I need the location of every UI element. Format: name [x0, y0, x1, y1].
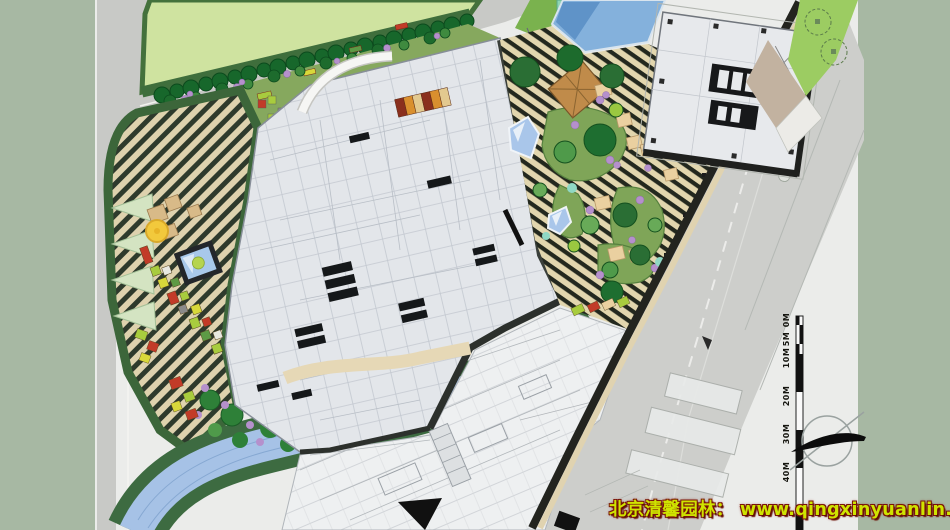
scale-label-40m: 40M [782, 460, 792, 484]
site-plan-drawing [0, 0, 950, 530]
watermark: 北京清馨园林： www.qingxinyuanlin.com [609, 496, 950, 521]
masterplan-canvas: 0M 5M 10M 20M 30M 40M 北京清馨园林： www.qingxi… [0, 0, 950, 530]
scale-label-30m: 30M [782, 422, 792, 446]
scale-label-20m: 20M [782, 384, 792, 408]
scale-label-10m: 10M [782, 346, 792, 370]
